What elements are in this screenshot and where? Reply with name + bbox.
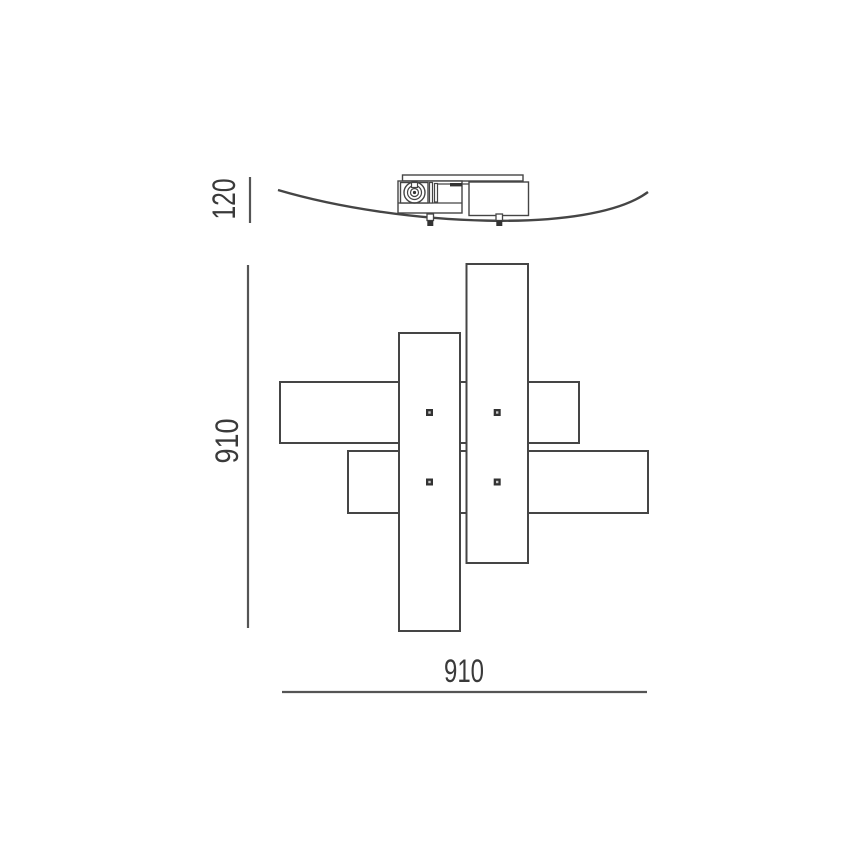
- side-view: [278, 175, 648, 226]
- mounting-clip-left: [427, 214, 434, 226]
- fixing-screw-bottom-right: [494, 479, 501, 486]
- plan-view: [280, 264, 648, 631]
- dim-label-plan-width: 910: [444, 653, 484, 689]
- bracket-bar-right: [435, 184, 438, 203]
- screw-center: [496, 411, 498, 413]
- clip-left-lower: [427, 221, 433, 227]
- fixing-screw-top-left: [426, 409, 433, 416]
- technical-drawing-canvas: 120 910 910: [0, 0, 868, 868]
- screw-center: [428, 481, 430, 483]
- glass-diffuser-curve: [278, 190, 648, 221]
- screw-center: [428, 411, 430, 413]
- dim-label-plan-height: 910: [209, 419, 245, 464]
- cable-gland-center-dot: [413, 191, 416, 194]
- canopy-lid: [403, 175, 524, 181]
- clip-left-upper: [427, 214, 434, 221]
- clip-right-lower: [496, 221, 502, 227]
- fixing-screw-bottom-left: [426, 479, 433, 486]
- dim-label-side-height: 120: [206, 179, 242, 220]
- ceiling-canopy: [398, 175, 529, 216]
- wire-dash: [450, 183, 462, 186]
- gland-top-slot: [412, 183, 418, 188]
- screw-center: [496, 481, 498, 483]
- clip-right-upper: [496, 214, 503, 221]
- bracket-bar-left: [430, 183, 433, 204]
- mounting-clip-right: [496, 214, 503, 226]
- fixing-screw-top-right: [494, 409, 501, 416]
- canopy-right-body: [469, 182, 529, 216]
- lamp-dimension-drawing: 120 910 910: [0, 0, 868, 868]
